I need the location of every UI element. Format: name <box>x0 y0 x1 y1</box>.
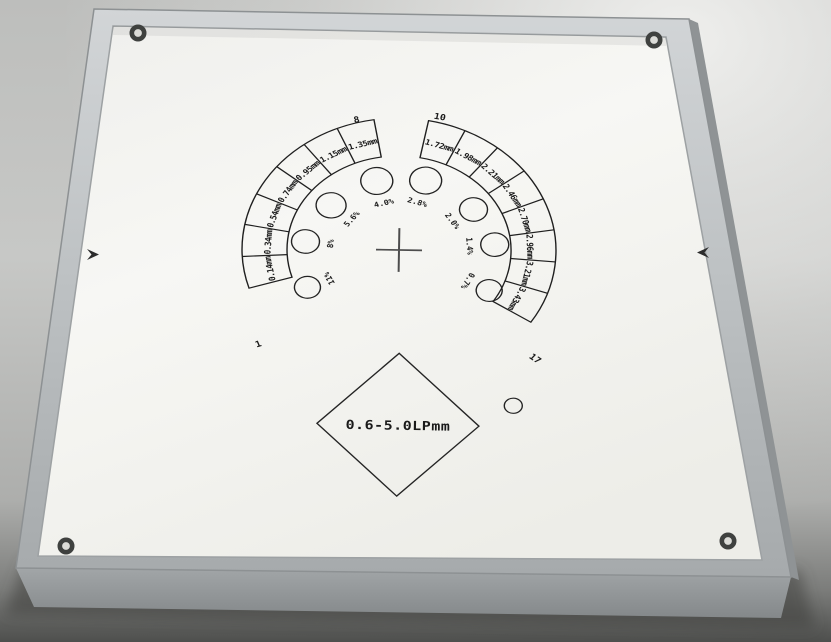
corner-screw-top-right <box>648 34 660 46</box>
photo-of-resolution-test-phantom: 1.35mm 1.15mm 0.95mm 0.74mm 0.54mm 0.34m… <box>0 0 831 642</box>
corner-screw-top-left <box>132 27 144 39</box>
resolution-segment-label: 0.34mm <box>262 229 275 255</box>
contrast-circle-label: 8% <box>325 239 336 249</box>
panel <box>38 26 762 560</box>
group-marker-label: 10 <box>433 112 447 124</box>
corner-screw-bottom-right <box>722 535 734 547</box>
lp-range-label: 0.6-5.0LPmm <box>345 418 450 434</box>
resolution-segment-label: 2.96mm <box>524 234 536 259</box>
contrast-circle-label: 1.4% <box>464 237 475 255</box>
corner-screw-bottom-left <box>60 540 72 552</box>
phantom-photo: 1.35mm 1.15mm 0.95mm 0.74mm 0.54mm 0.34m… <box>0 0 831 642</box>
